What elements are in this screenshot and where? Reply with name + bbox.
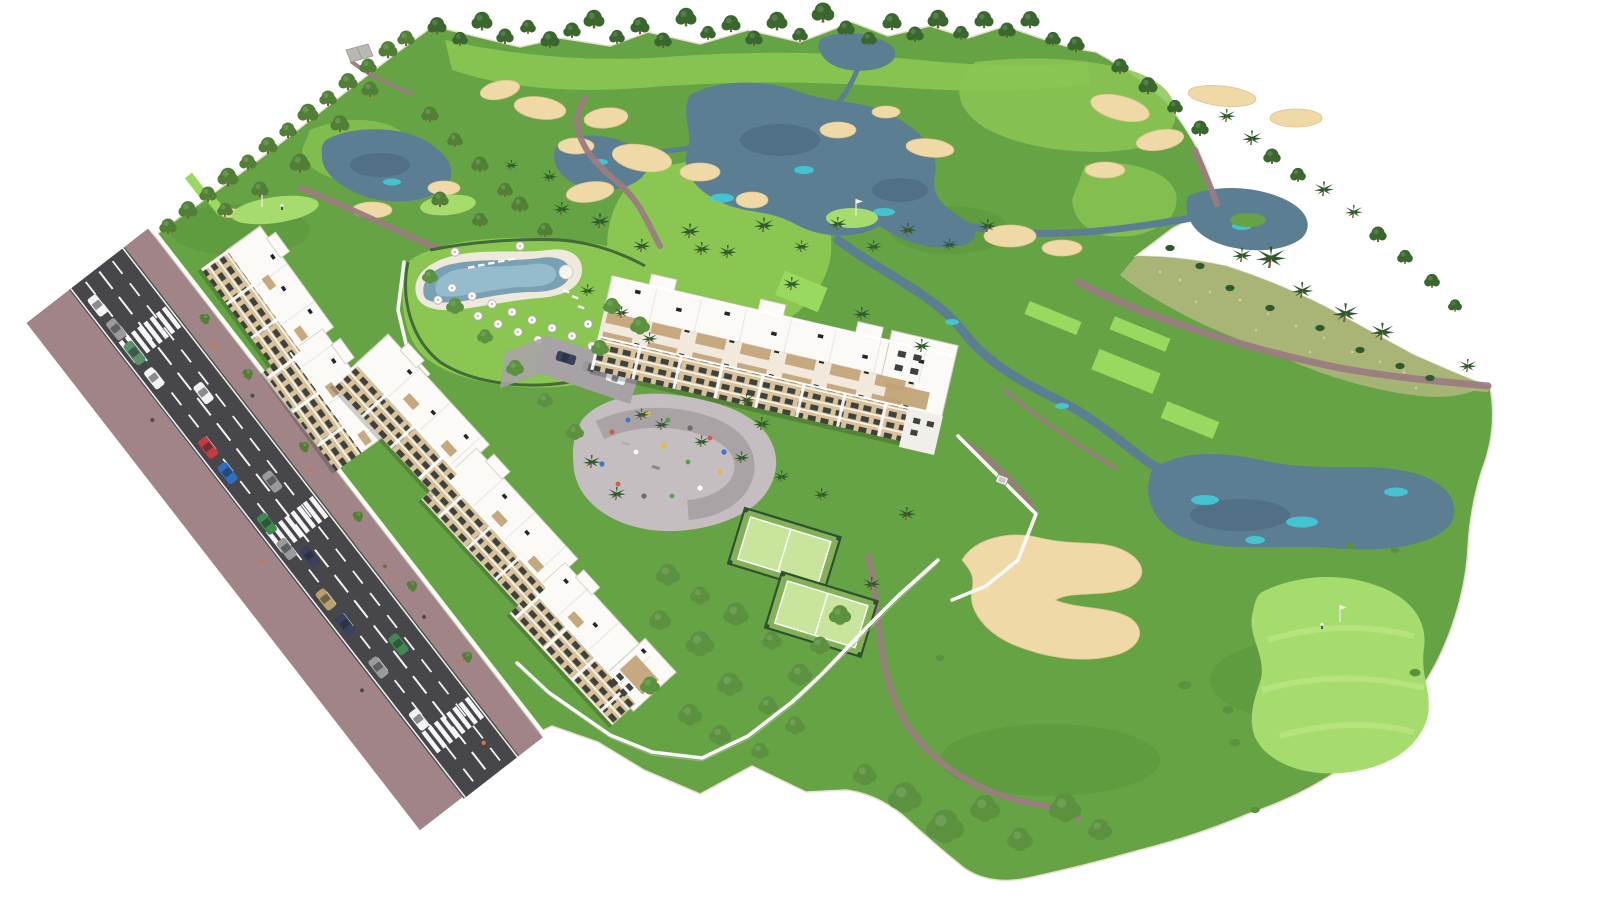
umbrella xyxy=(584,320,592,328)
bush xyxy=(1250,807,1259,813)
bush xyxy=(1409,669,1420,676)
umbrella xyxy=(434,296,442,304)
tree xyxy=(298,104,319,123)
tree xyxy=(974,11,993,28)
tree xyxy=(1067,37,1084,53)
palm-tree xyxy=(1242,131,1262,146)
tree xyxy=(520,20,536,34)
tree xyxy=(882,13,901,30)
tree xyxy=(218,168,239,187)
tree xyxy=(178,201,197,218)
tree xyxy=(472,12,493,31)
umbrella xyxy=(514,328,522,336)
tree xyxy=(427,17,446,34)
tree xyxy=(1191,121,1208,137)
tree xyxy=(928,10,949,29)
umbrella xyxy=(548,324,556,332)
umbrella xyxy=(528,316,536,324)
bush xyxy=(1355,347,1364,353)
umbrella xyxy=(494,320,502,328)
tree xyxy=(767,12,788,31)
bush xyxy=(935,655,944,661)
tree xyxy=(397,31,414,47)
tree xyxy=(630,17,649,34)
tree xyxy=(1045,32,1061,46)
tree xyxy=(319,91,336,107)
bush xyxy=(1195,263,1204,269)
bush xyxy=(1345,543,1354,549)
tree xyxy=(812,2,835,22)
palm-tree xyxy=(1345,205,1363,218)
palm-tree xyxy=(1314,182,1334,197)
umbrella xyxy=(448,284,456,292)
umbrella xyxy=(568,332,576,340)
tree xyxy=(1263,149,1280,165)
tree xyxy=(953,26,969,40)
bush xyxy=(1179,681,1192,690)
palm-tree xyxy=(1459,359,1477,372)
tree xyxy=(609,30,625,44)
palm-tree xyxy=(1218,109,1236,122)
tree xyxy=(700,26,716,40)
tree xyxy=(1369,227,1386,243)
tree xyxy=(359,59,376,75)
bush xyxy=(1395,363,1404,369)
bush xyxy=(1390,547,1399,553)
umbrella xyxy=(468,292,476,300)
aerial-render xyxy=(0,0,1600,900)
pond-island xyxy=(1230,213,1266,227)
tree xyxy=(1111,59,1128,75)
tree xyxy=(1020,11,1039,28)
tree xyxy=(998,23,1015,39)
umbrella xyxy=(508,308,516,316)
tree xyxy=(1448,299,1462,311)
umbrella xyxy=(451,248,459,256)
scene-canvas xyxy=(0,0,1600,900)
tree xyxy=(1424,274,1440,288)
tree xyxy=(378,41,397,58)
tree xyxy=(584,10,605,29)
bush xyxy=(1225,285,1234,291)
bush xyxy=(1425,375,1434,381)
tree xyxy=(676,8,697,27)
umbrella xyxy=(488,300,496,308)
tree xyxy=(279,123,296,139)
tree xyxy=(338,73,357,90)
tree xyxy=(239,155,256,171)
umbrella xyxy=(516,242,524,250)
pool-platform xyxy=(559,265,573,279)
bush xyxy=(1229,739,1240,746)
tree xyxy=(721,15,740,32)
tree xyxy=(258,137,277,154)
tree xyxy=(792,28,808,42)
tree xyxy=(496,29,513,45)
tree xyxy=(1397,250,1413,264)
tree xyxy=(540,31,559,48)
bush xyxy=(1222,706,1233,713)
bush xyxy=(1315,325,1324,331)
bush xyxy=(1265,305,1274,311)
tree xyxy=(1290,168,1306,182)
tree xyxy=(563,23,580,39)
umbrella xyxy=(474,312,482,320)
bush xyxy=(1165,245,1174,251)
